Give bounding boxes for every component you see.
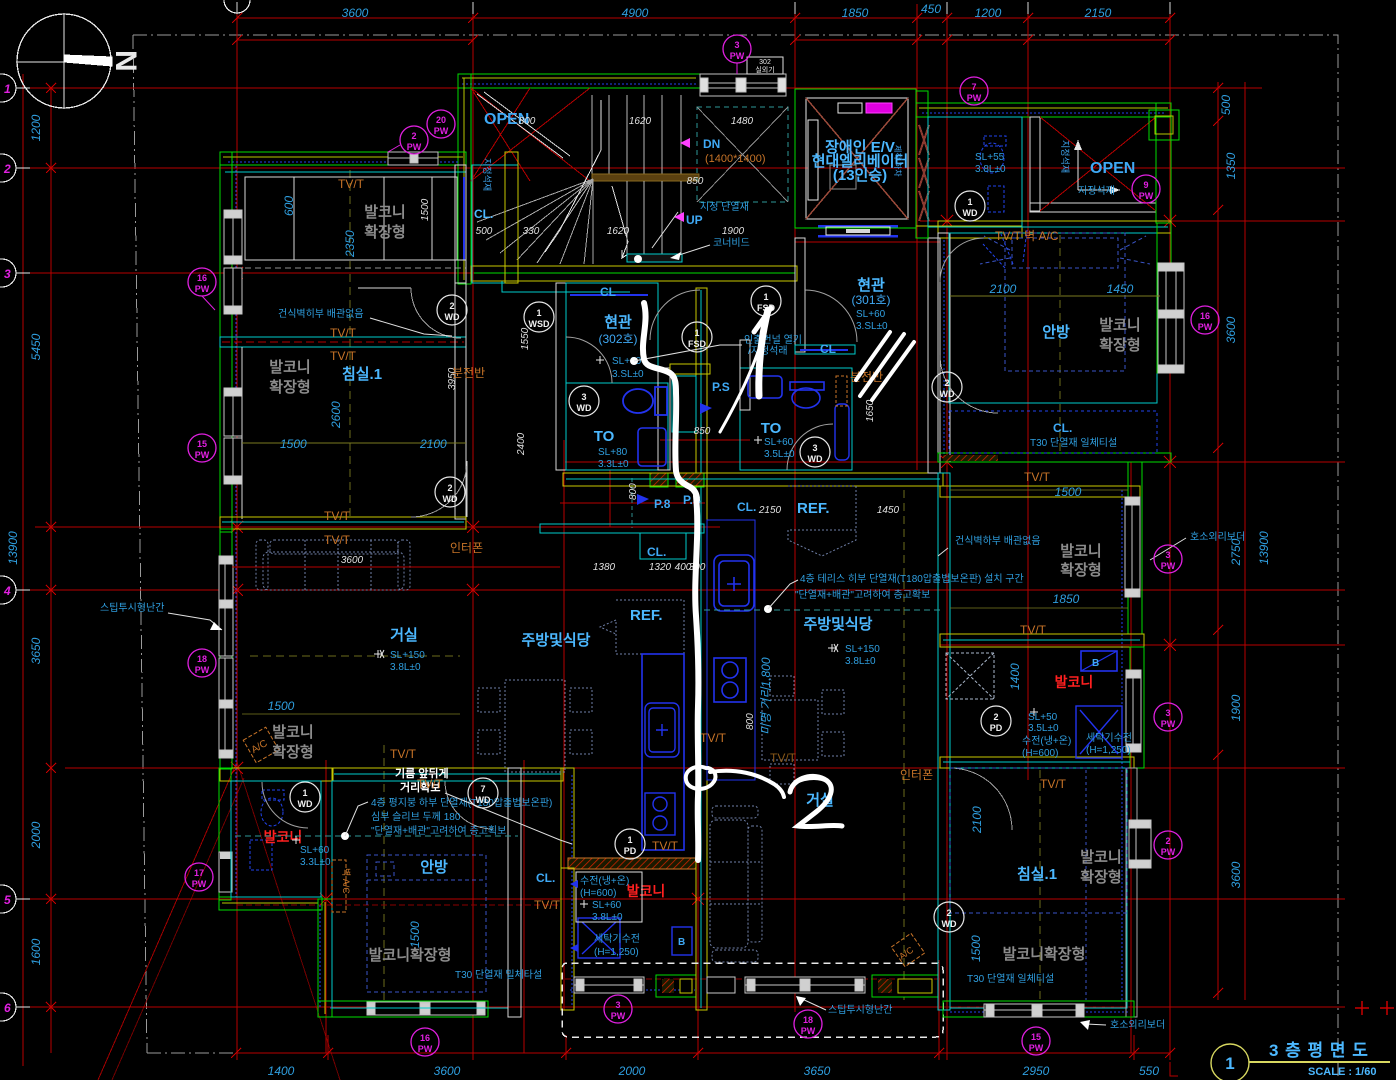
svg-text:1380: 1380	[593, 562, 616, 573]
svg-text:1400: 1400	[268, 1064, 295, 1078]
svg-text:TV/T: TV/T	[1024, 470, 1051, 484]
svg-text:3: 3	[4, 267, 11, 281]
svg-text:3: 3	[734, 40, 739, 50]
svg-text:1500: 1500	[408, 921, 422, 948]
svg-text:850: 850	[687, 176, 704, 187]
svg-text:16: 16	[1200, 311, 1210, 321]
svg-text:TV/T: TV/T	[390, 747, 417, 761]
svg-text:TV/T: TV/T	[417, 777, 444, 791]
svg-text:1: 1	[4, 82, 11, 96]
svg-text:3.5L±0: 3.5L±0	[764, 449, 795, 460]
svg-text:SL+55: SL+55	[975, 152, 1005, 163]
svg-text:거실: 거실	[390, 627, 418, 644]
svg-text:1500: 1500	[280, 437, 307, 451]
svg-text:발코니: 발코니	[269, 359, 310, 376]
svg-text:1850: 1850	[1053, 592, 1080, 606]
svg-text:(1400*1400): (1400*1400)	[705, 153, 766, 165]
svg-text:3.SL±0: 3.SL±0	[612, 369, 644, 380]
svg-text:TV/T: TV/T	[534, 898, 561, 912]
svg-text:REF.: REF.	[797, 500, 830, 517]
svg-text:코너비드: 코너비드	[713, 237, 750, 249]
svg-text:800: 800	[519, 116, 536, 127]
svg-text:TV/T: TV/T	[338, 177, 365, 191]
svg-text:PW: PW	[1161, 847, 1176, 857]
svg-text:OPEN: OPEN	[1090, 160, 1135, 177]
svg-text:20: 20	[436, 115, 446, 125]
svg-text:3: 3	[1165, 708, 1170, 718]
svg-text:1320: 1320	[649, 562, 672, 573]
svg-text:PD: PD	[990, 723, 1003, 733]
svg-text:3.8L±0: 3.8L±0	[845, 656, 876, 667]
svg-text:주방및식당: 주방및식당	[521, 631, 590, 649]
svg-text:(H=600): (H=600)	[580, 888, 616, 899]
svg-text:4층 평지붕 하부 단열재(T180압출법보온판): 4층 평지붕 하부 단열재(T180압출법보온판)	[371, 796, 552, 809]
svg-text:1500: 1500	[268, 699, 295, 713]
svg-text:3600: 3600	[342, 6, 369, 20]
svg-text:발코니: 발코니	[1099, 317, 1140, 334]
svg-text:550: 550	[1139, 1064, 1159, 1078]
svg-text:실외기: 실외기	[755, 65, 774, 74]
svg-text:2: 2	[3, 162, 11, 176]
svg-text:인출번널 열기: 인출번널 열기	[744, 334, 802, 346]
svg-text:2000: 2000	[29, 821, 43, 849]
svg-text:1900: 1900	[722, 226, 745, 237]
svg-text:(H=1,250): (H=1,250)	[1086, 745, 1131, 756]
svg-text:18: 18	[803, 1015, 813, 1025]
svg-text:확장형: 확장형	[272, 743, 313, 761]
svg-text:PW: PW	[434, 126, 449, 136]
svg-text:WD: WD	[476, 795, 491, 805]
svg-text:확장형: 확장형	[364, 223, 405, 241]
svg-text:1: 1	[302, 788, 307, 798]
svg-text:WD: WD	[942, 919, 957, 929]
svg-text:1650: 1650	[865, 399, 876, 422]
svg-text:확장형: 확장형	[1099, 336, 1140, 354]
svg-text:PW: PW	[967, 93, 982, 103]
svg-text:지정석재: 지정석재	[1060, 140, 1070, 173]
svg-text:PW: PW	[611, 1011, 626, 1021]
svg-text:13900: 13900	[6, 531, 20, 565]
svg-text:현관: 현관	[857, 277, 885, 294]
svg-text:스팁투시형난간: 스팁투시형난간	[100, 602, 164, 614]
svg-text:1500: 1500	[969, 935, 983, 962]
svg-text:3: 3	[615, 1000, 620, 1010]
svg-text:2100: 2100	[419, 437, 447, 451]
svg-text:발코니확장형: 발코니확장형	[1003, 945, 1086, 963]
svg-text:302: 302	[759, 59, 771, 66]
svg-text:1550: 1550	[520, 327, 531, 350]
svg-text:850: 850	[694, 426, 711, 437]
svg-text:P.S: P.S	[712, 380, 730, 394]
svg-text:1200: 1200	[29, 114, 43, 141]
svg-text:800: 800	[745, 713, 756, 730]
svg-text:1480: 1480	[731, 116, 754, 127]
svg-text:1500: 1500	[420, 198, 431, 221]
svg-text:(H=1,250): (H=1,250)	[594, 947, 639, 958]
svg-text:1400: 1400	[1008, 663, 1022, 690]
svg-text:CL.: CL.	[474, 207, 493, 221]
svg-text:SL+150: SL+150	[390, 650, 425, 661]
svg-text:TO: TO	[594, 428, 615, 445]
svg-text:침실.1: 침실.1	[342, 366, 382, 383]
svg-text:4900: 4900	[622, 6, 649, 20]
svg-text:TV/T: TV/T	[324, 533, 351, 547]
svg-text:WD: WD	[808, 454, 823, 464]
svg-text:WD: WD	[443, 494, 458, 504]
svg-text:UP: UP	[686, 213, 703, 227]
svg-text:발코니: 발코니	[1060, 543, 1101, 560]
svg-text:WD: WD	[445, 312, 460, 322]
svg-text:2: 2	[993, 712, 998, 722]
svg-text:SL+60: SL+60	[300, 845, 330, 856]
svg-text:SL+150: SL+150	[845, 644, 880, 655]
svg-text:1620: 1620	[629, 116, 652, 127]
svg-text:안방: 안방	[420, 858, 448, 876]
svg-text:PD: PD	[624, 846, 637, 856]
svg-text:3.5L±0: 3.5L±0	[1028, 723, 1059, 734]
svg-text:PW: PW	[1139, 191, 1154, 201]
svg-text:4층 테리스 히부 단열재(T180압출법보온판) 설치 구: 4층 테리스 히부 단열재(T180압출법보온판) 설치 구간	[800, 572, 1024, 585]
svg-text:SL+80: SL+80	[598, 447, 628, 458]
svg-text:3 층 평 면 도: 3 층 평 면 도	[1269, 1041, 1369, 1060]
svg-text:2: 2	[449, 301, 454, 311]
svg-text:PW: PW	[195, 284, 210, 294]
svg-text:CL.: CL.	[536, 871, 555, 885]
svg-text:1850: 1850	[842, 6, 869, 20]
svg-text:지정석재: 지정석재	[482, 158, 492, 191]
svg-text:1: 1	[694, 328, 699, 338]
svg-text:1620: 1620	[607, 226, 630, 237]
svg-text:B: B	[678, 937, 685, 948]
svg-text:PW: PW	[1029, 1043, 1044, 1053]
svg-text:5450: 5450	[29, 333, 43, 360]
svg-text:수전(냉+온): 수전(냉+온)	[1022, 735, 1071, 747]
svg-text:미명 거리1,800: 미명 거리1,800	[759, 657, 773, 735]
svg-text:1350: 1350	[1224, 152, 1238, 179]
svg-text:P.8: P.8	[654, 497, 671, 511]
svg-text:CL.: CL.	[647, 545, 666, 559]
svg-text:3600: 3600	[1224, 316, 1238, 343]
svg-text:지정석재: 지정석재	[1078, 185, 1115, 197]
svg-text:분전반: 분전반	[452, 366, 485, 380]
svg-text:1: 1	[1225, 1054, 1234, 1073]
svg-text:건식벽하부 배관없음: 건식벽하부 배관없음	[955, 534, 1041, 547]
svg-text:심부 슬리브 두께 180: 심부 슬리브 두께 180	[371, 811, 461, 823]
svg-text:PW: PW	[1198, 322, 1213, 332]
svg-text:"단열재+배관"고려하여 층고획보: "단열재+배관"고려하여 층고획보	[371, 824, 506, 837]
svg-text:7: 7	[971, 82, 976, 92]
svg-text:5: 5	[4, 893, 11, 907]
svg-text:SL+60: SL+60	[764, 437, 794, 448]
svg-text:3.8L±0: 3.8L±0	[975, 164, 1006, 175]
svg-text:1450: 1450	[1107, 282, 1134, 296]
svg-text:6: 6	[4, 1001, 11, 1015]
svg-text:3600: 3600	[434, 1064, 461, 1078]
svg-text:3650: 3650	[29, 637, 43, 664]
svg-text:WD: WD	[940, 389, 955, 399]
svg-text:450: 450	[921, 2, 941, 16]
svg-text:7: 7	[480, 784, 485, 794]
svg-text:500: 500	[476, 226, 493, 237]
svg-text:PW: PW	[192, 879, 207, 889]
svg-text:2: 2	[1165, 836, 1170, 846]
svg-text:PW: PW	[1161, 561, 1176, 571]
svg-text:3: 3	[581, 392, 586, 402]
svg-text:TV/T: TV/T	[330, 349, 357, 363]
svg-text:/지정석래: /지정석래	[748, 345, 788, 357]
svg-text:(302호): (302호)	[598, 332, 637, 346]
svg-text:2: 2	[447, 483, 452, 493]
svg-text:(H=600): (H=600)	[1022, 748, 1058, 759]
svg-text:TV/T: TV/T	[700, 731, 727, 745]
svg-text:발코니: 발코니	[272, 724, 313, 741]
svg-text:PW: PW	[801, 1026, 816, 1036]
svg-text:3.8L±0: 3.8L±0	[390, 662, 421, 673]
svg-text:2400: 2400	[516, 432, 527, 456]
svg-text:건식벽히부 배관없음: 건식벽히부 배관없음	[278, 307, 364, 320]
svg-text:SL+60: SL+60	[856, 309, 886, 320]
svg-text:스팁투시형난간: 스팁투시형난간	[828, 1004, 892, 1016]
svg-text:3.SL±0: 3.SL±0	[856, 321, 888, 332]
svg-text:15: 15	[1031, 1032, 1041, 1042]
svg-text:PW: PW	[730, 51, 745, 61]
svg-text:세탁기수전: 세탁기수전	[1086, 732, 1132, 744]
svg-text:B: B	[1092, 658, 1099, 669]
svg-text:3600: 3600	[1229, 861, 1243, 888]
svg-text:16: 16	[197, 273, 207, 283]
svg-text:확장형: 확장형	[269, 378, 310, 396]
svg-text:3: 3	[1165, 550, 1170, 560]
svg-text:16: 16	[420, 1033, 430, 1043]
svg-text:PW: PW	[407, 142, 422, 152]
svg-text:2100: 2100	[989, 282, 1017, 296]
svg-text:1200: 1200	[975, 6, 1002, 20]
svg-text:TV/T: TV/T	[324, 509, 351, 523]
svg-text:800: 800	[628, 483, 639, 500]
svg-text:CL.: CL.	[737, 500, 756, 514]
svg-text:CL: CL	[820, 342, 836, 356]
svg-text:REF.: REF.	[630, 607, 663, 624]
svg-text:2600: 2600	[329, 401, 343, 429]
svg-text:호소외리보더: 호소외리보더	[1110, 1019, 1165, 1031]
svg-text:침실.1: 침실.1	[1017, 866, 1057, 883]
svg-text:TV/T 벽 A/C: TV/T 벽 A/C	[995, 229, 1059, 243]
svg-text:PW: PW	[1161, 719, 1176, 729]
svg-text:PW: PW	[195, 450, 210, 460]
svg-text:600: 600	[282, 196, 296, 216]
svg-text:지정 단열재: 지정 단열재	[700, 201, 749, 213]
svg-text:2150: 2150	[758, 505, 782, 516]
svg-text:2950: 2950	[1022, 1064, 1050, 1078]
svg-text:330: 330	[523, 226, 540, 237]
svg-text:TV/T: TV/T	[1040, 777, 1067, 791]
svg-text:SL+50: SL+50	[1028, 712, 1058, 723]
svg-text:호소외리보더: 호소외리보더	[1190, 531, 1245, 543]
svg-text:4: 4	[3, 584, 11, 598]
svg-text:주방및식당: 주방및식당	[803, 615, 872, 633]
svg-text:발코니: 발코니	[264, 829, 303, 845]
svg-text:2000: 2000	[618, 1064, 646, 1078]
svg-text:T30 단열재 밀체타설: T30 단열재 밀체타설	[455, 969, 542, 981]
svg-text:1: 1	[536, 308, 541, 318]
svg-text:DN: DN	[703, 137, 720, 151]
svg-text:WD: WD	[298, 799, 313, 809]
svg-text:3.3L±0: 3.3L±0	[598, 459, 629, 470]
svg-text:2: 2	[944, 378, 949, 388]
svg-text:3.8L±0: 3.8L±0	[592, 912, 623, 923]
svg-text:1600: 1600	[29, 938, 43, 965]
svg-text:벽 A/C: 벽 A/C	[341, 868, 351, 894]
svg-text:인터폰: 인터폰	[900, 768, 933, 782]
svg-text:발코니: 발코니	[1055, 674, 1094, 690]
svg-text:TV/T: TV/T	[330, 326, 357, 340]
svg-text:CL: CL	[600, 285, 616, 299]
svg-text:SCALE : 1/60: SCALE : 1/60	[1308, 1066, 1376, 1078]
svg-text:15: 15	[197, 439, 207, 449]
svg-text:2100: 2100	[970, 806, 984, 834]
svg-text:PW: PW	[195, 665, 210, 675]
svg-text:1450: 1450	[877, 505, 900, 516]
svg-text:WD: WD	[577, 403, 592, 413]
svg-text:확장형: 확장형	[1080, 868, 1121, 886]
svg-text:현관: 현관	[604, 314, 632, 331]
svg-text:T30 단열재 일체티설: T30 단열재 일체티설	[967, 973, 1054, 985]
svg-text:N: N	[109, 50, 142, 72]
svg-text:3650: 3650	[804, 1064, 831, 1078]
svg-text:세탁기수전: 세탁기수전	[594, 933, 640, 945]
svg-text:(301호): (301호)	[851, 293, 890, 307]
svg-text:TV/T: TV/T	[770, 751, 797, 765]
svg-text:3600: 3600	[341, 555, 364, 566]
svg-text:1900: 1900	[1229, 694, 1243, 721]
svg-text:2350: 2350	[343, 230, 357, 258]
svg-text:PW: PW	[418, 1044, 433, 1054]
svg-text:수전(냉+온): 수전(냉+온)	[580, 875, 629, 887]
svg-text:9: 9	[1143, 180, 1148, 190]
svg-text:500: 500	[1219, 95, 1233, 115]
svg-text:확장형: 확장형	[1060, 561, 1101, 579]
svg-text:CL.: CL.	[1053, 421, 1072, 435]
svg-text:인터폰: 인터폰	[450, 541, 483, 555]
svg-text:SL+60: SL+60	[592, 900, 622, 911]
svg-text:(13인승): (13인승)	[833, 166, 887, 184]
svg-text:T30 단열재 일체티설: T30 단열재 일체티설	[1030, 437, 1117, 449]
svg-text:WSD: WSD	[529, 319, 550, 329]
svg-text:1: 1	[967, 197, 972, 207]
svg-text:TV/T: TV/T	[1020, 623, 1047, 637]
svg-text:2: 2	[411, 131, 416, 141]
svg-text:1: 1	[763, 292, 768, 302]
svg-text:TV/T: TV/T	[652, 839, 679, 853]
svg-text:1: 1	[627, 835, 632, 845]
svg-text:18: 18	[197, 654, 207, 664]
svg-text:TO: TO	[761, 420, 782, 437]
svg-text:발코니: 발코니	[1080, 849, 1121, 866]
svg-text:발코니: 발코니	[364, 204, 405, 221]
svg-text:3.3L±0: 3.3L±0	[300, 857, 331, 868]
svg-text:2: 2	[946, 908, 951, 918]
svg-text:13900: 13900	[1257, 531, 1271, 565]
svg-text:WD: WD	[963, 208, 978, 218]
svg-text:FSD: FSD	[688, 339, 707, 349]
svg-text:1500: 1500	[1055, 485, 1082, 499]
svg-text:제작 하차: 제작 하차	[893, 145, 903, 177]
svg-text:발코니: 발코니	[627, 883, 666, 899]
svg-text:17: 17	[194, 868, 204, 878]
svg-text:"단열재+배관"고려하여 층고확보: "단열재+배관"고려하여 층고확보	[795, 588, 930, 601]
svg-text:3: 3	[812, 443, 817, 453]
svg-text:안방: 안방	[1042, 323, 1070, 341]
svg-text:2150: 2150	[1084, 6, 1112, 20]
